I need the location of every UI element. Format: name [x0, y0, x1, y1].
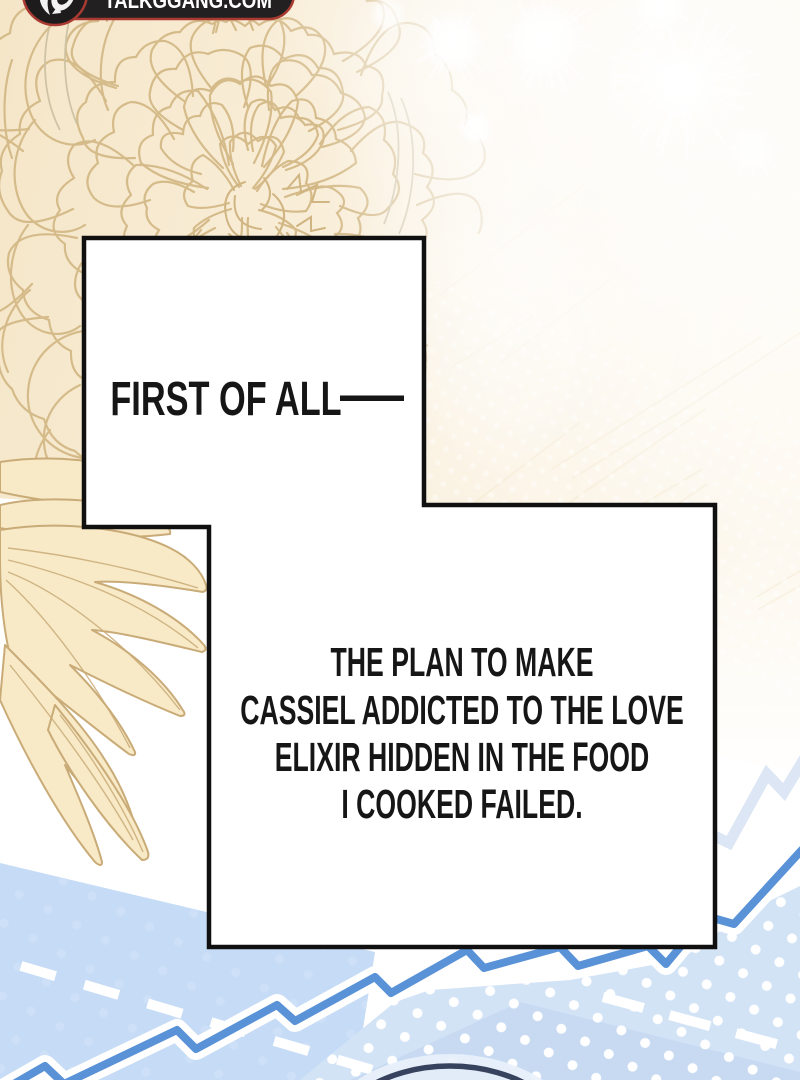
svg-text:FIRST OF ALL: FIRST OF ALL: [110, 371, 341, 425]
svg-text:TALKGGANG.COM: TALKGGANG.COM: [104, 0, 272, 13]
svg-text:I COOKED FAILED.: I COOKED FAILED.: [341, 782, 582, 827]
svg-text:ELIXIR HIDDEN IN THE FOOD: ELIXIR HIDDEN IN THE FOOD: [275, 735, 649, 780]
svg-text:CASSIEL ADDICTED TO THE LOVE: CASSIEL ADDICTED TO THE LOVE: [240, 688, 684, 733]
svg-text:THE PLAN TO MAKE: THE PLAN TO MAKE: [331, 640, 594, 685]
